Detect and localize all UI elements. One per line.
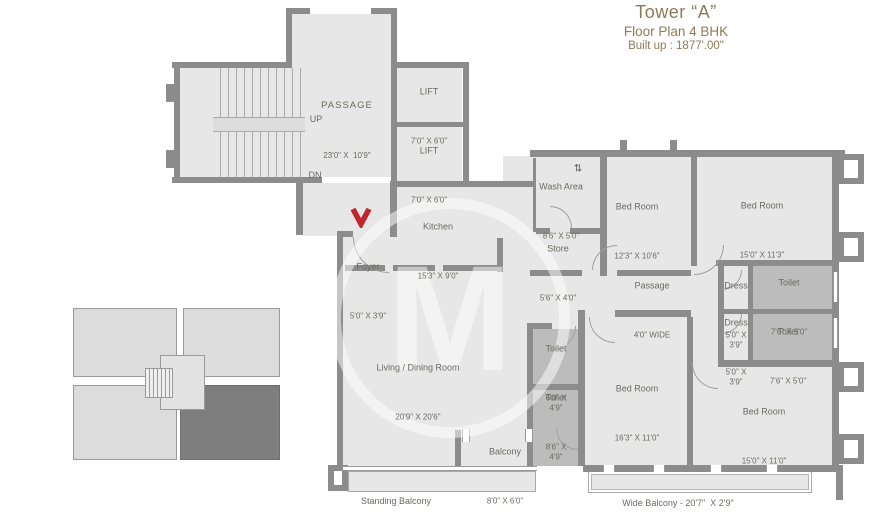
room-label-bedroom3: Bed Room 16'3" X 11'0"	[615, 345, 660, 444]
wall-segment	[174, 62, 180, 183]
column-bay	[838, 434, 864, 464]
wall-segment	[166, 84, 174, 102]
staircase-lower-flight	[213, 132, 305, 177]
room-label-core-passage: PASSAGE 23'0" X 10'9"	[321, 61, 373, 199]
wall-segment	[832, 150, 839, 472]
wall-segment	[620, 140, 627, 152]
wall-segment	[337, 231, 343, 468]
window	[462, 429, 470, 442]
window	[833, 318, 838, 348]
wall-segment	[172, 62, 292, 68]
wall-segment	[463, 62, 469, 187]
label-stairs-up: UP	[307, 75, 325, 125]
window	[833, 272, 838, 302]
keyplan	[68, 300, 284, 472]
column-bay	[838, 154, 864, 184]
wall-segment	[836, 465, 843, 500]
window	[525, 429, 533, 442]
wall-segment	[533, 158, 536, 232]
wall-segment	[578, 310, 585, 466]
wall-segment	[390, 187, 397, 237]
wall-segment	[527, 323, 533, 466]
builtup-area: Built up : 1877'.00"	[561, 40, 791, 52]
tower-title: Tower “A”	[561, 2, 791, 23]
window	[603, 465, 615, 472]
room-label-inner-passage: Passage 4'0" WIDE	[634, 242, 670, 341]
title-block: Tower “A” Floor Plan 4 BHK Built up : 18…	[561, 2, 791, 52]
wall-segment	[670, 140, 677, 152]
room-label-store: Store 5'6" X 4'0"	[540, 205, 576, 304]
wall-segment	[296, 183, 303, 235]
floor-plan-canvas: Tower “A” Floor Plan 4 BHK Built up : 18…	[0, 0, 878, 523]
room-label-living-dining: Living / Dining Room 20'9" X 20'6"	[376, 324, 459, 423]
plan-subtitle: Floor Plan 4 BHK	[561, 24, 791, 39]
wall-segment	[391, 8, 397, 68]
staircase-upper-flight	[213, 68, 305, 117]
room-label-standing-balcony: Standing Balcony	[361, 457, 431, 507]
room-label-bedroom4: Bed Room 15'0" X 11'0"	[742, 368, 787, 467]
room-label-kitchen: Kitchen 15'3" X 9'0"	[418, 183, 459, 282]
column-bay	[838, 232, 864, 262]
room-label-balcony: Balcony 8'0" X 6'0"	[487, 408, 523, 507]
keyplan-stairs	[145, 368, 173, 398]
label-stairs-dn: DN	[306, 131, 324, 181]
wall-segment	[166, 150, 174, 168]
wall-segment	[687, 317, 693, 466]
room-label-wide-balcony: Wide Balcony - 20'7" X 2'9"	[622, 459, 733, 509]
room-label-foyer: Foyer 5'0" X 3'9"	[350, 223, 386, 322]
room-label-toilet4: Toilet 8'6" X 4'9"	[539, 354, 573, 463]
wall-segment	[286, 8, 292, 68]
wall-segment	[286, 8, 310, 14]
column-bay	[838, 362, 864, 392]
staircase-landing	[213, 117, 305, 132]
wall-segment	[455, 430, 461, 468]
